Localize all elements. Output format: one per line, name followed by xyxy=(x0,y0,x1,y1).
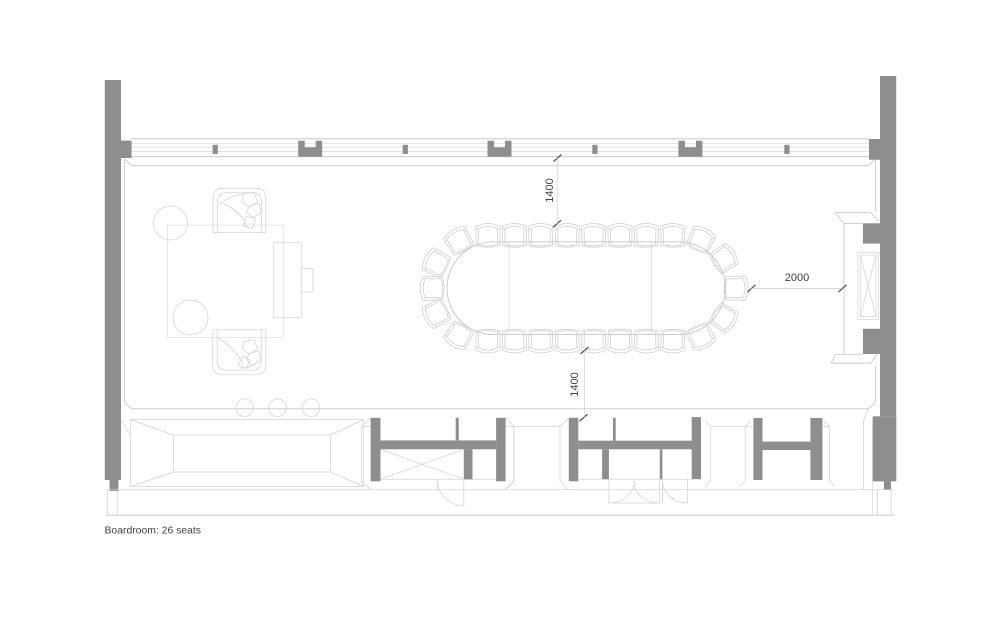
svg-text:2000: 2000 xyxy=(785,272,809,284)
svg-text:1400: 1400 xyxy=(569,372,581,396)
svg-text:Boardroom: 26 seats: Boardroom: 26 seats xyxy=(105,526,201,537)
svg-text:1400: 1400 xyxy=(544,178,556,202)
